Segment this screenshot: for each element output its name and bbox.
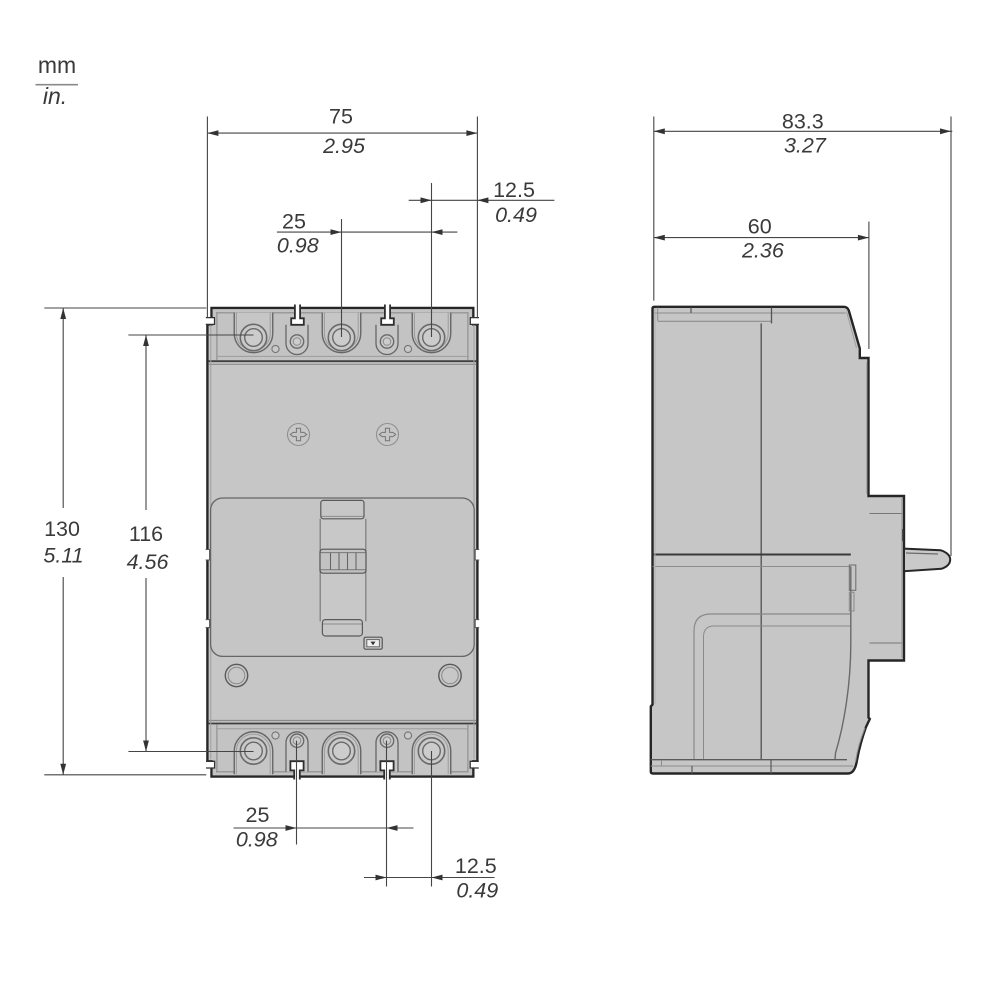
svg-text:116: 116 bbox=[129, 522, 163, 546]
svg-text:0.49: 0.49 bbox=[456, 879, 498, 903]
svg-text:2.36: 2.36 bbox=[741, 239, 784, 263]
svg-text:0.98: 0.98 bbox=[277, 234, 319, 258]
svg-text:0.98: 0.98 bbox=[236, 828, 278, 852]
svg-text:4.56: 4.56 bbox=[127, 550, 169, 574]
svg-text:12.5: 12.5 bbox=[455, 854, 497, 878]
svg-text:3.27: 3.27 bbox=[784, 133, 827, 157]
svg-text:in.: in. bbox=[43, 83, 67, 109]
svg-text:12.5: 12.5 bbox=[493, 178, 535, 202]
svg-text:5.11: 5.11 bbox=[43, 544, 83, 568]
svg-text:130: 130 bbox=[44, 517, 80, 541]
svg-text:75: 75 bbox=[329, 105, 353, 129]
svg-text:25: 25 bbox=[282, 210, 306, 234]
svg-text:2.95: 2.95 bbox=[322, 134, 366, 158]
svg-text:25: 25 bbox=[246, 803, 270, 827]
svg-text:mm: mm bbox=[38, 52, 76, 78]
svg-text:60: 60 bbox=[748, 214, 772, 238]
svg-text:0.49: 0.49 bbox=[495, 203, 537, 227]
svg-text:83.3: 83.3 bbox=[782, 109, 824, 133]
